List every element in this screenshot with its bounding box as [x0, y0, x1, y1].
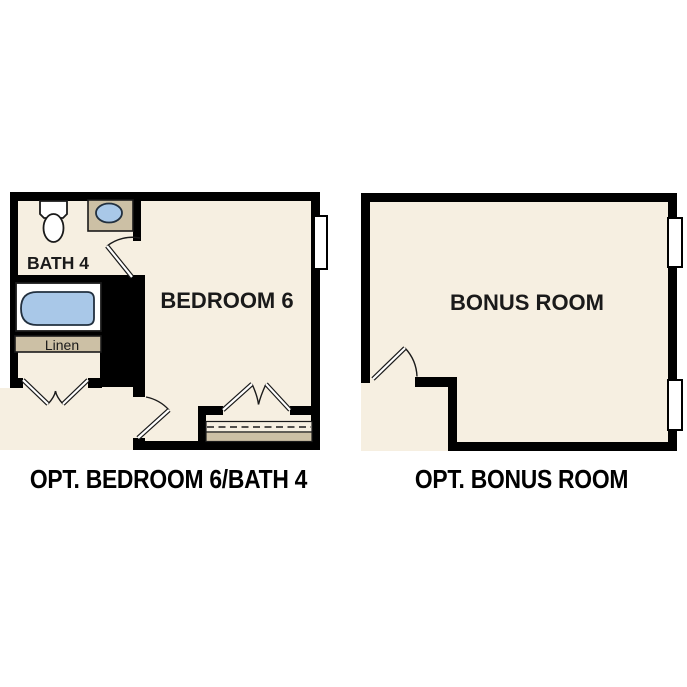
floorplan-canvas: BATH 4 BEDROOM 6 Linen OPT. BEDROOM 6/BA…: [0, 0, 687, 687]
right-floorplan: BONUS ROOM OPT. BONUS ROOM: [361, 193, 682, 494]
wall-above-tub: [10, 275, 105, 283]
bedroom-window-icon: [314, 216, 327, 269]
sink-basin-icon: [96, 204, 122, 223]
closet-shelf-icon: [206, 432, 312, 442]
bathtub-icon: [21, 292, 94, 325]
wall-core-mass: [100, 275, 145, 387]
left-plan-caption: OPT. BEDROOM 6/BATH 4: [30, 466, 308, 495]
floorplan-page: BATH 4 BEDROOM 6 Linen OPT. BEDROOM 6/BA…: [0, 0, 687, 687]
wall-linen-jamb-right: [88, 378, 102, 388]
bonus-window-lower-icon: [668, 380, 682, 430]
wall-bath-bedroom: [133, 200, 141, 241]
bonus-wall-top: [361, 193, 677, 202]
wall-bedroom-door-jamb-bottom: [133, 438, 145, 450]
bonus-room-label: BONUS ROOM: [450, 290, 604, 315]
left-floorplan: BATH 4 BEDROOM 6 Linen OPT. BEDROOM 6/BA…: [0, 192, 327, 494]
bonus-wall-left: [361, 193, 370, 383]
wall-linen-jamb-left: [10, 378, 23, 388]
wall-closet-side: [198, 406, 206, 450]
wall-top: [10, 192, 320, 201]
bonus-wall-bottom: [448, 442, 677, 451]
right-plan-caption: OPT. BONUS ROOM: [415, 466, 628, 495]
wall-bottom: [133, 441, 320, 450]
bonus-wall-notch-horizontal: [415, 377, 457, 387]
bonus-window-upper-icon: [668, 218, 682, 267]
linen-label: Linen: [45, 337, 79, 353]
bath-label: BATH 4: [27, 253, 89, 273]
bedroom-label: BEDROOM 6: [160, 288, 293, 313]
wall-closet-jamb-right: [290, 406, 312, 415]
bonus-wall-notch-vertical: [448, 387, 457, 451]
wall-bedroom-door-jamb-top: [133, 387, 145, 397]
toilet-bowl-icon: [44, 214, 64, 242]
bonus-room-floor: [361, 193, 677, 451]
